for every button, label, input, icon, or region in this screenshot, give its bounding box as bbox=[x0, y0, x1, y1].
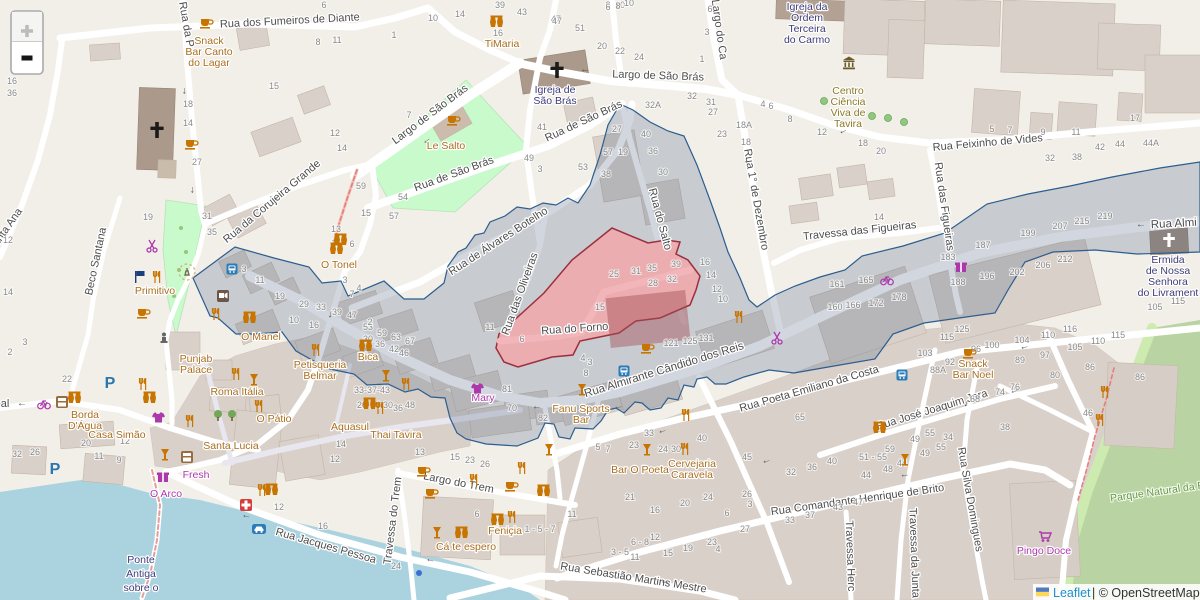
svg-text:47: 47 bbox=[853, 497, 863, 507]
svg-text:161: 161 bbox=[829, 279, 844, 289]
svg-text:Feniçia: Feniçia bbox=[488, 525, 522, 537]
svg-text:38: 38 bbox=[1000, 422, 1010, 432]
svg-text:27: 27 bbox=[192, 157, 202, 167]
svg-text:36: 36 bbox=[375, 339, 385, 349]
svg-text:199: 199 bbox=[1020, 228, 1035, 238]
svg-text:42: 42 bbox=[1095, 142, 1105, 152]
svg-text:Igreja daOrdemTerceirado Carmo: Igreja daOrdemTerceirado Carmo bbox=[784, 1, 830, 46]
svg-text:42: 42 bbox=[389, 344, 399, 354]
svg-text:10: 10 bbox=[624, 0, 634, 8]
svg-text:Santa Lucia: Santa Lucia bbox=[203, 440, 259, 452]
svg-text:81: 81 bbox=[502, 384, 512, 394]
svg-text:10: 10 bbox=[428, 13, 438, 23]
svg-text:27: 27 bbox=[708, 107, 718, 117]
svg-text:3: 3 bbox=[704, 27, 709, 37]
svg-text:37: 37 bbox=[805, 510, 815, 520]
svg-text:11: 11 bbox=[1071, 127, 1080, 137]
svg-text:1: 1 bbox=[699, 54, 704, 64]
svg-text:63: 63 bbox=[391, 332, 401, 342]
svg-text:15: 15 bbox=[361, 208, 371, 218]
svg-text:59: 59 bbox=[885, 444, 895, 454]
svg-text:36: 36 bbox=[648, 146, 658, 156]
svg-text:6: 6 bbox=[519, 334, 524, 344]
svg-text:P: P bbox=[105, 375, 116, 392]
svg-text:47: 47 bbox=[552, 16, 562, 26]
svg-text:55: 55 bbox=[936, 442, 946, 452]
svg-text:46: 46 bbox=[399, 348, 409, 358]
svg-text:14: 14 bbox=[706, 270, 716, 280]
svg-text:23: 23 bbox=[717, 129, 727, 139]
svg-text:183: 183 bbox=[940, 252, 955, 262]
svg-text:41: 41 bbox=[537, 122, 547, 132]
svg-text:53: 53 bbox=[578, 162, 588, 172]
svg-text:O Tonel: O Tonel bbox=[321, 259, 357, 271]
svg-text:36: 36 bbox=[393, 403, 403, 413]
svg-text:125: 125 bbox=[954, 324, 969, 334]
svg-text:97: 97 bbox=[1040, 350, 1050, 360]
svg-text:86: 86 bbox=[1085, 362, 1095, 372]
svg-text:12: 12 bbox=[330, 128, 340, 138]
svg-text:2: 2 bbox=[7, 347, 12, 357]
svg-text:166: 166 bbox=[845, 300, 860, 310]
svg-text:SnackBar Noel: SnackBar Noel bbox=[953, 358, 994, 381]
svg-text:57: 57 bbox=[389, 211, 399, 221]
svg-text:30: 30 bbox=[658, 167, 668, 177]
svg-text:32: 32 bbox=[1045, 153, 1055, 163]
svg-text:34: 34 bbox=[943, 432, 953, 442]
svg-text:4: 4 bbox=[760, 99, 765, 109]
svg-text:110: 110 bbox=[1041, 330, 1055, 340]
svg-text:12: 12 bbox=[274, 502, 284, 512]
svg-text:27: 27 bbox=[612, 124, 622, 134]
svg-text:3: 3 bbox=[342, 275, 347, 285]
svg-text:15: 15 bbox=[663, 548, 673, 558]
svg-text:18: 18 bbox=[183, 99, 193, 109]
svg-text:17: 17 bbox=[1130, 113, 1140, 123]
svg-text:8: 8 bbox=[583, 368, 588, 378]
svg-text:6: 6 bbox=[349, 239, 354, 249]
svg-text:12: 12 bbox=[817, 127, 827, 137]
svg-text:Primitivo: Primitivo bbox=[135, 285, 175, 297]
svg-text:59: 59 bbox=[377, 328, 387, 338]
svg-text:26: 26 bbox=[480, 459, 490, 469]
svg-text:1 - 5 - 7: 1 - 5 - 7 bbox=[524, 524, 555, 534]
svg-text:110: 110 bbox=[1091, 336, 1105, 346]
svg-text:Igreja deSão Brás: Igreja deSão Brás bbox=[533, 84, 576, 107]
svg-text:165: 165 bbox=[858, 275, 873, 285]
svg-text:28: 28 bbox=[648, 278, 658, 288]
svg-text:16: 16 bbox=[700, 257, 710, 267]
svg-text:39: 39 bbox=[495, 0, 505, 10]
svg-text:131: 131 bbox=[698, 333, 713, 343]
svg-text:12: 12 bbox=[650, 532, 660, 542]
svg-text:23: 23 bbox=[465, 455, 475, 465]
svg-text:48: 48 bbox=[883, 464, 893, 474]
svg-text:12: 12 bbox=[712, 284, 722, 294]
svg-text:89: 89 bbox=[1015, 355, 1025, 365]
svg-text:15: 15 bbox=[595, 302, 605, 312]
svg-text:←: ← bbox=[532, 401, 542, 412]
svg-text:11: 11 bbox=[485, 322, 494, 332]
svg-text:51 - 55: 51 - 55 bbox=[859, 452, 887, 462]
svg-text:86: 86 bbox=[1135, 372, 1145, 382]
svg-text:125: 125 bbox=[682, 336, 697, 346]
svg-text:215: 215 bbox=[1074, 216, 1089, 226]
svg-text:13: 13 bbox=[415, 447, 425, 457]
svg-text:PunjabPalace: PunjabPalace bbox=[180, 353, 213, 376]
svg-text:44A: 44A bbox=[1143, 138, 1159, 148]
svg-text:46: 46 bbox=[1083, 408, 1093, 418]
svg-text:7: 7 bbox=[1007, 125, 1012, 135]
svg-text:O Arco: O Arco bbox=[150, 488, 182, 500]
svg-text:19: 19 bbox=[618, 147, 628, 157]
svg-text:36: 36 bbox=[807, 462, 817, 472]
svg-text:80: 80 bbox=[1050, 370, 1060, 380]
svg-text:10: 10 bbox=[289, 315, 299, 325]
svg-text:82: 82 bbox=[538, 413, 548, 423]
svg-text:35: 35 bbox=[207, 227, 217, 237]
svg-text:21: 21 bbox=[625, 492, 635, 502]
svg-text:←: ← bbox=[580, 64, 591, 76]
svg-text:160: 160 bbox=[827, 302, 842, 312]
svg-text:Thai Tavira: Thai Tavira bbox=[370, 429, 421, 441]
svg-text:32: 32 bbox=[786, 467, 796, 477]
svg-text:3: 3 bbox=[537, 164, 542, 174]
svg-text:18: 18 bbox=[858, 138, 868, 148]
svg-text:48: 48 bbox=[405, 400, 415, 410]
svg-text:6: 6 bbox=[321, 0, 326, 10]
svg-text:26: 26 bbox=[742, 489, 752, 499]
svg-text:31: 31 bbox=[202, 211, 212, 221]
svg-text:4: 4 bbox=[356, 283, 361, 293]
svg-text:212: 212 bbox=[1057, 254, 1072, 264]
svg-text:65: 65 bbox=[795, 412, 805, 422]
svg-text:45: 45 bbox=[742, 452, 752, 462]
svg-text:←: ← bbox=[186, 185, 197, 195]
svg-text:39: 39 bbox=[671, 259, 681, 269]
svg-text:14: 14 bbox=[455, 9, 465, 19]
svg-text:23: 23 bbox=[707, 537, 717, 547]
svg-text:20: 20 bbox=[597, 41, 607, 51]
svg-text:57: 57 bbox=[603, 147, 613, 157]
svg-text:16: 16 bbox=[7, 76, 17, 86]
svg-text:16: 16 bbox=[650, 505, 660, 515]
svg-text:←: ← bbox=[17, 398, 27, 409]
svg-text:115: 115 bbox=[1111, 330, 1125, 340]
svg-text:O Pátio: O Pátio bbox=[256, 413, 291, 425]
svg-text:Mary: Mary bbox=[471, 392, 495, 404]
svg-text:47: 47 bbox=[347, 310, 357, 320]
svg-text:12: 12 bbox=[330, 454, 340, 464]
svg-text:4: 4 bbox=[580, 353, 585, 363]
svg-text:38: 38 bbox=[601, 169, 611, 179]
svg-text:35: 35 bbox=[647, 263, 657, 273]
svg-text:18A: 18A bbox=[736, 120, 752, 130]
svg-text:116: 116 bbox=[1063, 324, 1077, 334]
svg-text:54: 54 bbox=[398, 192, 408, 202]
svg-text:219: 219 bbox=[1097, 211, 1112, 221]
svg-text:33: 33 bbox=[785, 515, 795, 525]
svg-text:27: 27 bbox=[740, 524, 750, 534]
svg-text:202: 202 bbox=[1009, 267, 1024, 277]
svg-text:6: 6 bbox=[768, 101, 773, 111]
svg-text:105: 105 bbox=[1067, 342, 1082, 352]
svg-text:88A: 88A bbox=[930, 365, 946, 375]
svg-text:8: 8 bbox=[787, 114, 792, 124]
svg-text:121: 121 bbox=[663, 338, 678, 348]
svg-text:16: 16 bbox=[309, 320, 319, 330]
svg-text:33-37-43: 33-37-43 bbox=[354, 385, 390, 395]
svg-text:Travessa Herc: Travessa Herc bbox=[843, 520, 857, 592]
svg-text:36: 36 bbox=[7, 88, 17, 98]
svg-text:67: 67 bbox=[405, 336, 415, 346]
svg-text:5: 5 bbox=[989, 124, 994, 134]
svg-text:115: 115 bbox=[940, 332, 954, 342]
svg-text:19: 19 bbox=[683, 543, 693, 553]
svg-text:33: 33 bbox=[644, 428, 654, 438]
svg-text:11: 11 bbox=[94, 451, 103, 461]
svg-text:23: 23 bbox=[629, 440, 639, 450]
svg-text:30: 30 bbox=[671, 444, 681, 454]
svg-text:31: 31 bbox=[631, 266, 641, 276]
svg-text:9: 9 bbox=[116, 455, 121, 465]
svg-text:Aquasul: Aquasul bbox=[331, 421, 369, 433]
svg-text:24: 24 bbox=[658, 444, 668, 454]
svg-text:12: 12 bbox=[3, 235, 13, 245]
svg-text:32: 32 bbox=[667, 274, 677, 284]
svg-text:20: 20 bbox=[876, 146, 886, 156]
svg-text:43: 43 bbox=[517, 7, 527, 17]
svg-text:172: 172 bbox=[868, 298, 883, 308]
svg-text:51: 51 bbox=[575, 23, 585, 33]
svg-text:3: 3 bbox=[22, 337, 27, 347]
svg-text:PonteAntigasobre o: PonteAntigasobre o bbox=[123, 554, 158, 594]
svg-text:24: 24 bbox=[391, 561, 401, 571]
svg-text:16: 16 bbox=[318, 521, 328, 531]
svg-text:178: 178 bbox=[891, 292, 906, 302]
svg-text:40: 40 bbox=[641, 129, 651, 139]
svg-text:22: 22 bbox=[615, 46, 625, 56]
svg-text:14: 14 bbox=[874, 212, 884, 222]
svg-text:18: 18 bbox=[741, 137, 751, 147]
svg-text:←: ← bbox=[178, 86, 189, 96]
svg-text:Fresh: Fresh bbox=[183, 469, 210, 481]
svg-text:1: 1 bbox=[391, 30, 396, 40]
svg-text:44: 44 bbox=[861, 470, 871, 480]
svg-text:6: 6 bbox=[707, 4, 712, 14]
svg-text:24: 24 bbox=[703, 492, 713, 502]
svg-text:49: 49 bbox=[910, 434, 920, 444]
svg-text:9: 9 bbox=[1040, 127, 1045, 137]
svg-text:←: ← bbox=[660, 575, 671, 587]
svg-text:92: 92 bbox=[945, 357, 955, 367]
svg-text:P: P bbox=[50, 461, 61, 478]
svg-text:49: 49 bbox=[920, 448, 930, 458]
svg-text:15: 15 bbox=[450, 452, 460, 462]
svg-text:11: 11 bbox=[567, 509, 576, 519]
svg-text:←: ← bbox=[740, 154, 752, 165]
svg-text:20: 20 bbox=[680, 498, 690, 508]
svg-text:74: 74 bbox=[995, 387, 1005, 397]
svg-text:44: 44 bbox=[1115, 139, 1125, 149]
svg-text:19: 19 bbox=[143, 212, 153, 222]
svg-text:11: 11 bbox=[255, 275, 264, 285]
svg-text:Pingo Doce: Pingo Doce bbox=[1017, 545, 1071, 557]
svg-text:70: 70 bbox=[507, 403, 517, 413]
svg-text:40: 40 bbox=[827, 456, 837, 466]
svg-text:11: 11 bbox=[332, 35, 341, 45]
svg-text:14: 14 bbox=[336, 439, 346, 449]
svg-text:32A: 32A bbox=[645, 100, 661, 110]
svg-text:26: 26 bbox=[30, 447, 40, 457]
svg-text:105: 105 bbox=[1147, 302, 1162, 312]
svg-text:6: 6 bbox=[474, 509, 479, 519]
svg-text:15: 15 bbox=[269, 81, 279, 91]
svg-text:7: 7 bbox=[349, 289, 354, 299]
svg-text:TiMaria: TiMaria bbox=[485, 38, 520, 50]
svg-text:8: 8 bbox=[315, 37, 320, 47]
svg-text:24: 24 bbox=[634, 52, 644, 62]
svg-text:7: 7 bbox=[605, 444, 610, 454]
svg-text:100: 100 bbox=[984, 340, 999, 350]
svg-text:Bar O Poeta: Bar O Poeta bbox=[611, 464, 669, 476]
svg-text:14: 14 bbox=[337, 143, 347, 153]
svg-text:←: ← bbox=[1136, 219, 1147, 231]
svg-text:13: 13 bbox=[331, 224, 341, 234]
svg-text:14: 14 bbox=[183, 118, 193, 128]
svg-text:3: 3 bbox=[587, 357, 592, 367]
svg-text:43: 43 bbox=[833, 502, 843, 512]
svg-text:14: 14 bbox=[3, 287, 13, 297]
svg-text:206: 206 bbox=[1035, 260, 1050, 270]
svg-text:38: 38 bbox=[1072, 152, 1082, 162]
svg-text:3: 3 bbox=[241, 264, 246, 274]
svg-text:29: 29 bbox=[299, 299, 309, 309]
svg-text:6: 6 bbox=[724, 508, 729, 518]
svg-text:CervejariaCaravela: CervejariaCaravela bbox=[668, 458, 716, 481]
svg-text:6: 6 bbox=[605, 2, 610, 12]
svg-text:25: 25 bbox=[609, 269, 619, 279]
svg-text:6 - 8: 6 - 8 bbox=[631, 537, 649, 547]
svg-text:7: 7 bbox=[406, 110, 411, 120]
svg-text:22: 22 bbox=[62, 374, 72, 384]
svg-text:3 - 5: 3 - 5 bbox=[611, 547, 629, 557]
svg-text:188: 188 bbox=[950, 277, 965, 287]
svg-text:11: 11 bbox=[630, 552, 639, 562]
svg-text:CentroCiênciaViva deTavira: CentroCiênciaViva deTavira bbox=[830, 85, 865, 130]
svg-text:| © OpenStreetMap: | © OpenStreetMap bbox=[1092, 586, 1200, 600]
svg-text:16: 16 bbox=[493, 28, 503, 38]
svg-text:40: 40 bbox=[697, 433, 707, 443]
svg-text:32: 32 bbox=[687, 91, 697, 101]
svg-text:32: 32 bbox=[12, 449, 22, 459]
svg-text:3: 3 bbox=[747, 499, 752, 509]
svg-text:8: 8 bbox=[615, 1, 620, 11]
svg-text:31: 31 bbox=[706, 97, 716, 107]
svg-text:Casa Simão: Casa Simão bbox=[88, 429, 145, 441]
svg-text:Rua Almi: Rua Almi bbox=[1151, 217, 1198, 231]
svg-text:187: 187 bbox=[975, 240, 990, 250]
svg-text:Bica: Bica bbox=[358, 351, 379, 363]
svg-text:103: 103 bbox=[917, 348, 932, 358]
svg-text:Leaflet: Leaflet bbox=[1053, 586, 1091, 600]
svg-text:2: 2 bbox=[367, 317, 372, 327]
svg-text:207: 207 bbox=[1052, 221, 1067, 231]
svg-text:Cá te espero: Cá te espero bbox=[436, 541, 496, 553]
svg-text:eal: eal bbox=[0, 398, 9, 410]
svg-text:Roma Itália: Roma Itália bbox=[210, 386, 263, 398]
svg-text:5: 5 bbox=[595, 442, 600, 452]
svg-text:59: 59 bbox=[356, 181, 366, 191]
svg-text:←: ← bbox=[899, 468, 910, 480]
svg-text:49: 49 bbox=[524, 153, 534, 163]
svg-text:196: 196 bbox=[979, 271, 994, 281]
svg-text:55: 55 bbox=[925, 428, 935, 438]
svg-text:19: 19 bbox=[275, 291, 285, 301]
svg-text:10: 10 bbox=[718, 294, 728, 304]
svg-text:O Manel: O Manel bbox=[241, 331, 281, 343]
